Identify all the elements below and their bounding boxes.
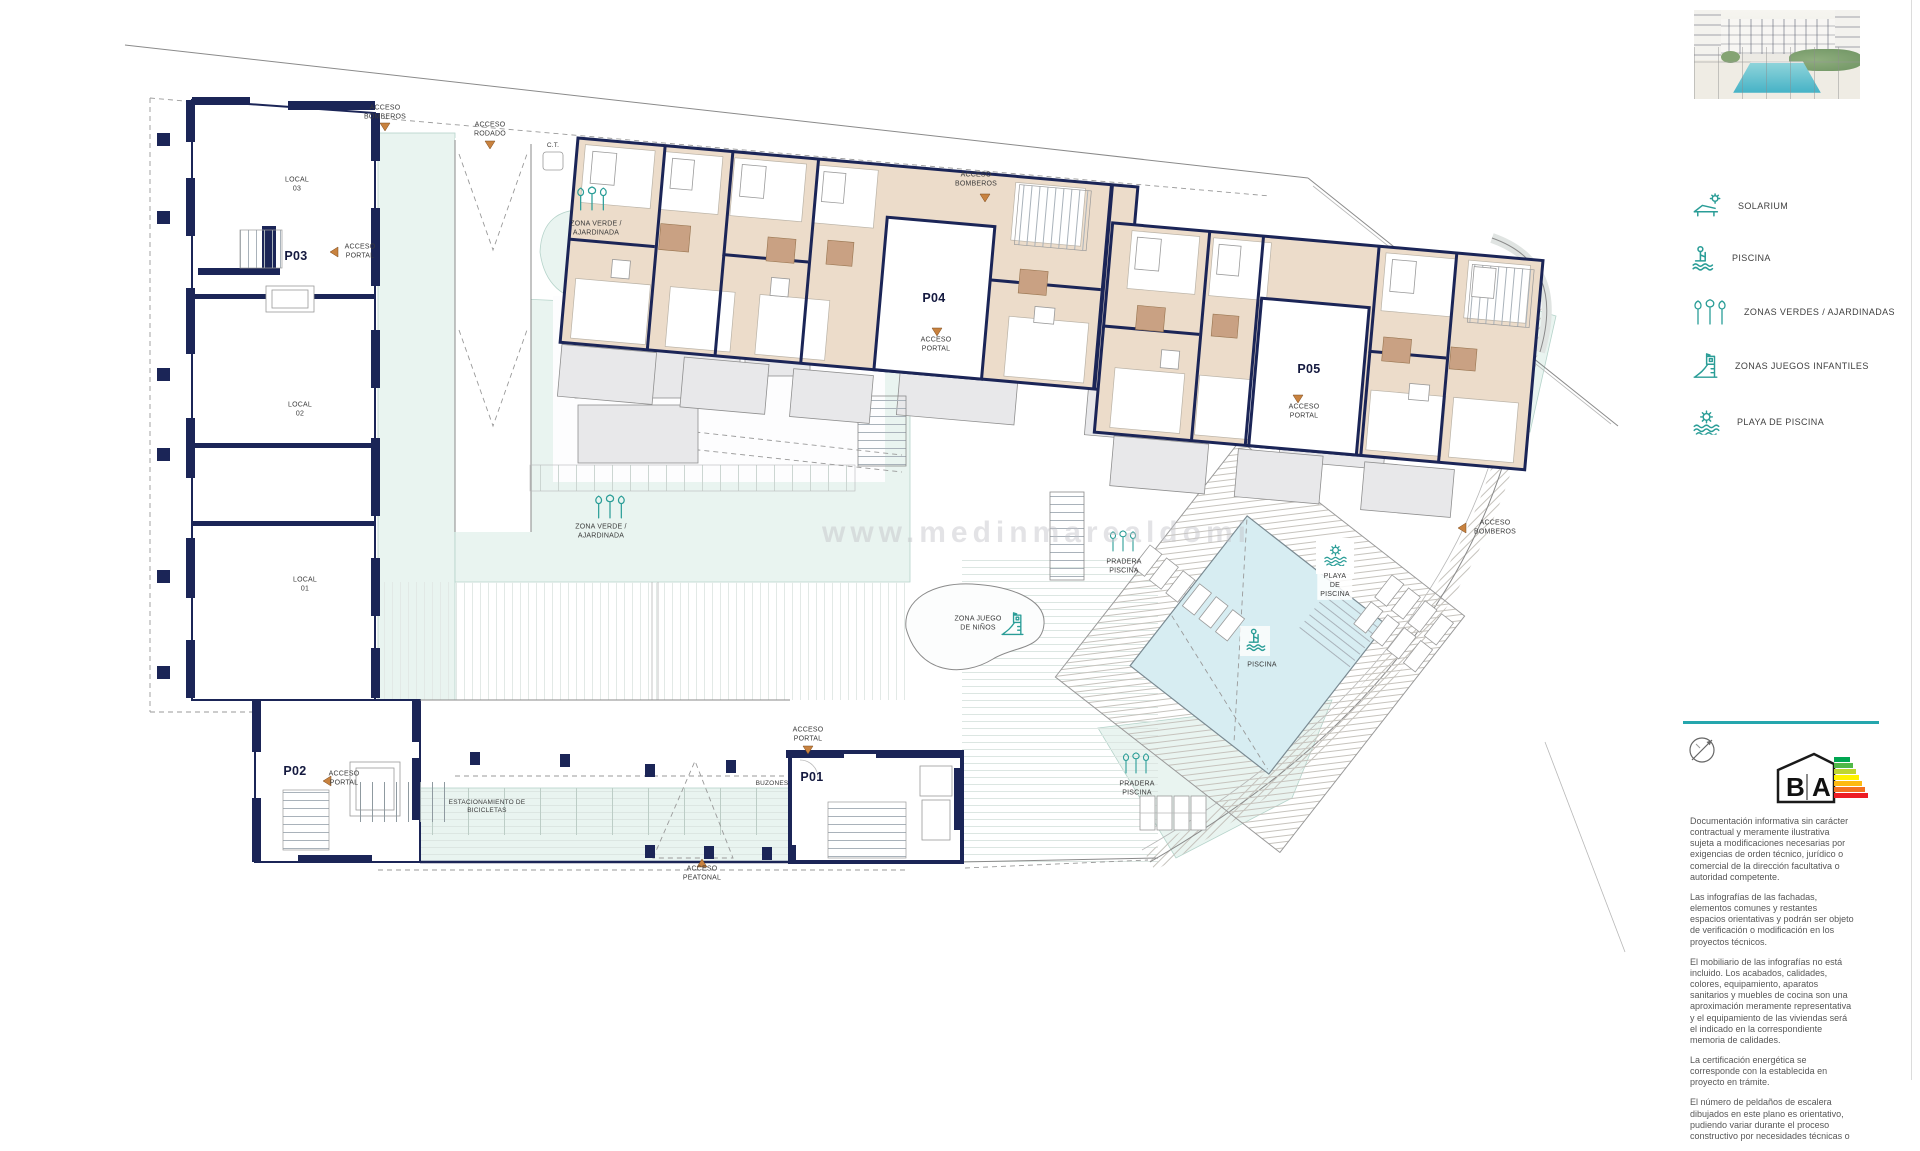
photo-fence [1694,47,1860,99]
legend-item-juegos: ZONAS JUEGOS INFANTILES [1692,346,1917,386]
legend-label: PISCINA [1732,253,1771,263]
green-zones-icon [1692,299,1728,325]
legend-label: SOLARIUM [1738,201,1788,211]
disclaimer-paragraph: La certificación energética se correspon… [1690,1055,1854,1088]
disclaimer-paragraph: El número de peldaños de escalera dibuja… [1690,1097,1854,1142]
energy-letter-a: A [1812,772,1831,802]
legal-disclaimer: Documentación informativa sin carácter c… [1690,816,1854,1151]
disclaimer-paragraph: El mobiliario de las infografías no está… [1690,957,1854,1046]
legend-item-solarium: SOLARIUM [1692,186,1917,226]
disclaimer-paragraph: Documentación informativa sin carácter c… [1690,816,1854,883]
legend-label: ZONAS JUEGOS INFANTILES [1735,361,1869,371]
legend-label: PLAYA DE PISCINA [1737,417,1824,427]
legend-item-zonas-verdes: ZONAS VERDES / AJARDINADAS [1692,292,1917,332]
solarium-icon [1692,193,1722,219]
disclaimer-paragraph: Las infografías de las fachadas, element… [1690,892,1854,948]
watermark: www.medinmarealdomi [822,516,1242,550]
floorplan-brochure-page: { "legend": { "items": [ {"icon": "solar… [0,0,1920,1080]
energy-letter-b: B [1786,772,1805,802]
north-arrow-compass-icon [1686,734,1718,766]
left-building [157,97,380,700]
development-render-photo [1694,10,1860,99]
pool-beach-icon [1692,410,1721,435]
legend-label: ZONAS VERDES / AJARDINADAS [1744,307,1895,317]
access-road [455,138,531,532]
pool-icon [1692,245,1716,272]
energy-arrow-scale [1834,757,1868,798]
playground-icon [1692,353,1719,380]
panel-divider [1911,0,1912,1080]
portal-p01-block [786,750,964,862]
energy-rating-logo: B A [1774,750,1870,806]
section-divider-rule [1683,721,1879,724]
bike-racks [354,782,450,822]
transformer-box [543,152,563,170]
legend-item-piscina: PISCINA [1692,238,1917,278]
legend-item-playa: PLAYA DE PISCINA [1692,402,1917,442]
